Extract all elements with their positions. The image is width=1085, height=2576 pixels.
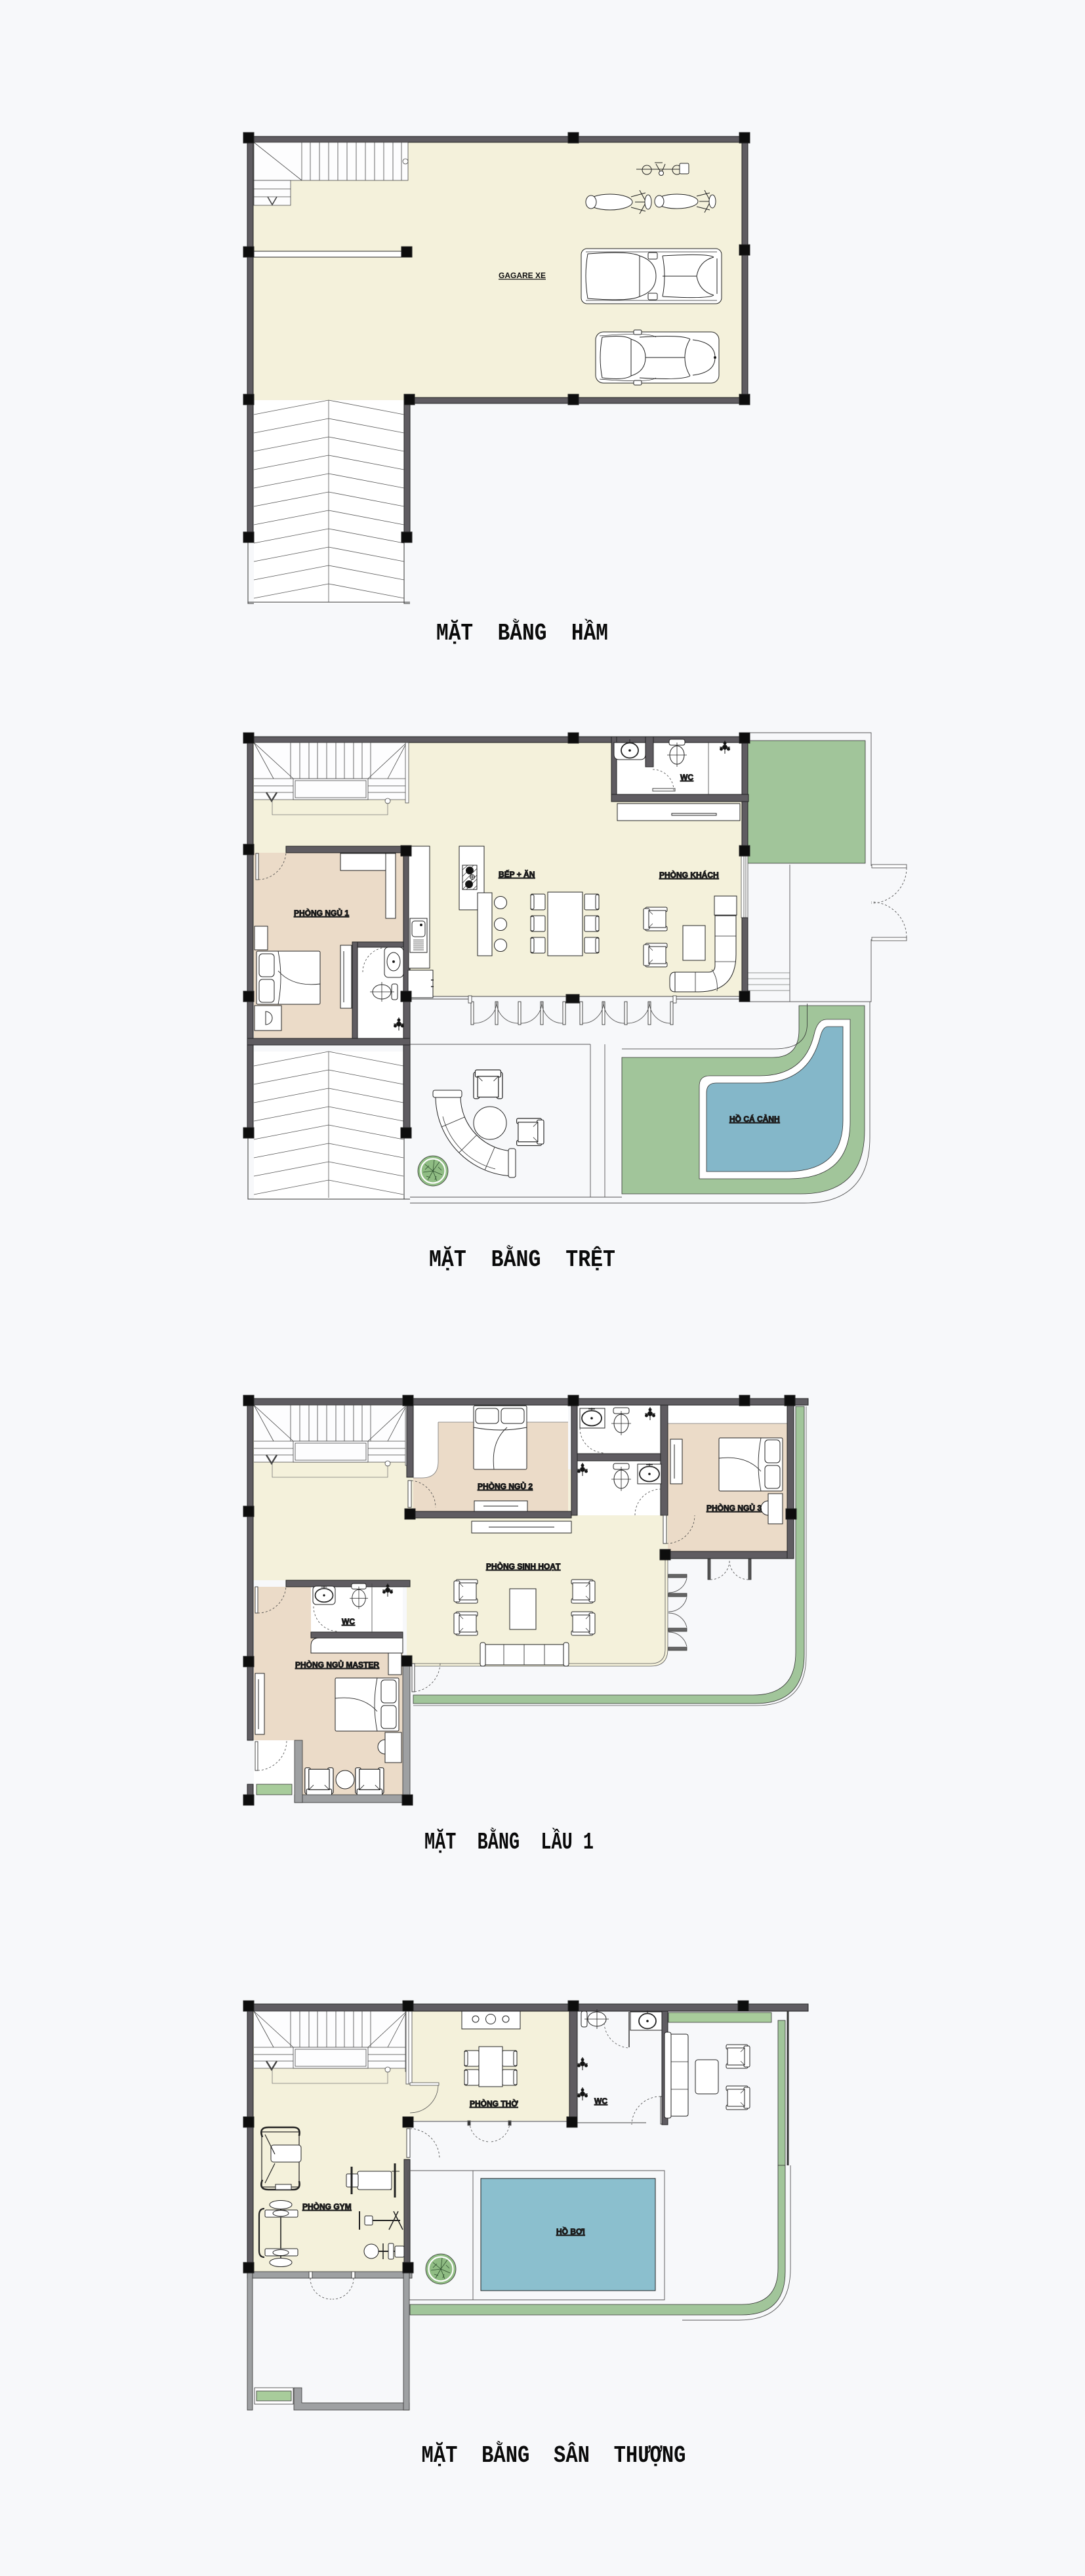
svg-text:BẾP + ĂN: BẾP + ĂN — [499, 869, 535, 879]
svg-text:HỒ CÁ CẢNH: HỒ CÁ CẢNH — [729, 1114, 780, 1124]
svg-text:PHÒNG THỜ: PHÒNG THỜ — [470, 2098, 518, 2108]
svg-text:MẶT BẰNG LẦU 1: MẶT BẰNG LẦU 1 — [424, 1827, 594, 1856]
svg-text:PHÒNG NGỦ MASTER: PHÒNG NGỦ MASTER — [295, 1660, 379, 1669]
svg-text:PHÒNG NGỦ 2: PHÒNG NGỦ 2 — [478, 1481, 533, 1491]
svg-text:HỒ BƠI: HỒ BƠI — [556, 2226, 585, 2236]
svg-text:PHÒNG GYM: PHÒNG GYM — [302, 2201, 352, 2211]
svg-text:WC: WC — [680, 773, 693, 782]
svg-text:GAGARE XE: GAGARE XE — [499, 271, 546, 280]
svg-text:PHÒNG KHÁCH: PHÒNG KHÁCH — [659, 870, 719, 880]
svg-text:MẶT BẰNG SÂN THƯỢNG: MẶT BẰNG SÂN THƯỢNG — [422, 2440, 686, 2469]
svg-text:WC: WC — [342, 1617, 355, 1626]
svg-text:PHÒNG NGỦ 1: PHÒNG NGỦ 1 — [294, 908, 349, 918]
svg-text:MẶT BẰNG TRỆT: MẶT BẰNG TRỆT — [429, 1244, 615, 1273]
svg-text:PHÒNG SINH HOẠT: PHÒNG SINH HOẠT — [486, 1561, 561, 1571]
svg-text:MẶT BẰNG HẦM: MẶT BẰNG HẦM — [436, 618, 608, 647]
svg-text:PHÒNG NGỦ 3: PHÒNG NGỦ 3 — [706, 1503, 762, 1513]
svg-text:WC: WC — [594, 2096, 607, 2106]
